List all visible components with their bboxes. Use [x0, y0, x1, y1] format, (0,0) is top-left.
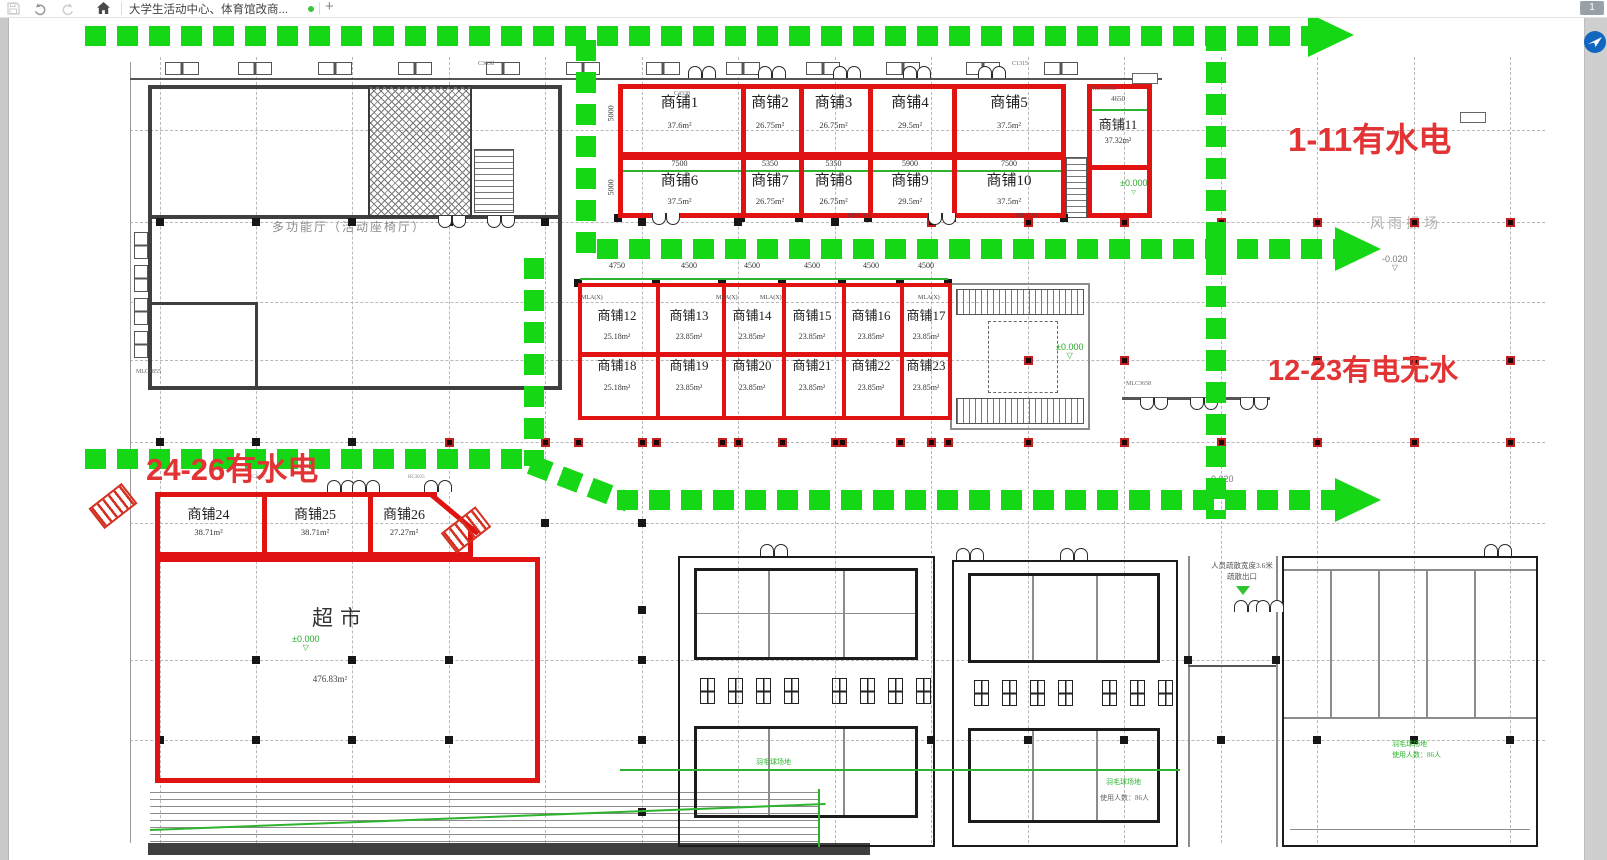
shop-area: 29.5m²	[868, 121, 952, 130]
shop-area: 23.85m²	[842, 333, 900, 342]
shop-area: 37.32m²	[1088, 137, 1148, 146]
redo-icon[interactable]	[60, 1, 75, 16]
stairs-symbol	[474, 149, 514, 213]
stairs-symbol	[1066, 157, 1087, 218]
dimension-text: 4500	[842, 262, 900, 271]
window-symbol	[646, 62, 680, 75]
shop-name: 商铺12	[578, 309, 656, 323]
stair-wall	[1088, 283, 1090, 430]
column-marker	[944, 438, 953, 447]
seat-block	[860, 678, 875, 704]
shop-area: 27.27m²	[368, 528, 440, 537]
exterior-wall	[558, 85, 562, 390]
column-marker	[1184, 656, 1192, 664]
dimension-text: 5900	[868, 160, 952, 169]
shop-divider	[1087, 165, 1152, 170]
wall-code: MLC1855	[136, 369, 161, 376]
stair-wall	[950, 283, 1090, 285]
shop-name: 商铺25	[262, 508, 368, 523]
shop-name: 商铺10	[952, 173, 1066, 190]
court-note: 羽毛球场地	[756, 759, 791, 767]
toolbar: 大学生活动中心、体育馆改商... +	[0, 0, 1607, 18]
column-marker	[778, 438, 787, 447]
window-symbol	[726, 62, 760, 75]
column-marker	[652, 438, 661, 447]
column-marker	[734, 438, 743, 447]
court-note: 羽毛球场地	[1392, 741, 1427, 749]
door-arc-icon	[1060, 548, 1088, 560]
bleacher-green-line	[818, 789, 820, 847]
column-marker	[1506, 356, 1515, 365]
seat-block	[1002, 680, 1017, 706]
window-symbol	[134, 331, 148, 358]
stairs-symbol	[956, 289, 1084, 315]
door-arc-icon	[758, 66, 786, 78]
shop-area: 23.85m²	[842, 384, 900, 393]
interior-wall	[148, 302, 255, 305]
seat-block	[916, 678, 931, 704]
exterior-wall	[148, 386, 562, 390]
door-code: MLA(X)	[716, 295, 738, 302]
door-arc-icon	[956, 548, 984, 560]
room-label-supermarket: 超市	[280, 607, 400, 630]
dimension-text: 7500	[618, 160, 741, 169]
stair-hatch-area	[368, 85, 472, 217]
column-marker	[1120, 438, 1129, 447]
column-marker	[1506, 736, 1514, 744]
dimension-text: 4500	[900, 262, 952, 271]
shop-name: 商铺16	[842, 309, 900, 323]
window-symbol	[318, 62, 352, 75]
seat-block	[784, 678, 799, 704]
shop-area: 37.5m²	[952, 197, 1066, 206]
door-code: MLA(X)	[760, 295, 782, 302]
seat-block	[832, 678, 847, 704]
shop-name: 商铺18	[578, 359, 656, 373]
window-symbol	[134, 265, 148, 292]
door-arc-icon	[833, 66, 861, 78]
column-marker	[638, 218, 646, 226]
column-marker	[1120, 356, 1129, 365]
seat-block	[974, 680, 989, 706]
shop-name: 商铺4	[868, 95, 952, 112]
elevation-marker: -0.020▽	[1382, 255, 1408, 272]
column-marker	[638, 736, 646, 744]
shop-name: 商铺11	[1088, 118, 1148, 132]
seat-block	[888, 678, 903, 704]
court-note: 使用人数：86人	[1392, 752, 1441, 760]
path-arrowhead	[1335, 227, 1381, 271]
annotation-shops-1-11: 1-11有水电	[1288, 113, 1451, 161]
seat-block	[1058, 680, 1073, 706]
dimension-text: 7500	[952, 160, 1066, 169]
shop-name: 商铺5	[952, 95, 1066, 112]
shop-area: 37.5m²	[952, 121, 1066, 130]
dimension-text: 4500	[782, 262, 842, 271]
assistant-float-icon[interactable]	[1584, 31, 1606, 53]
column-marker	[1024, 736, 1032, 744]
dimension-text: 4750	[578, 262, 656, 271]
shop-area: 37.6m²	[618, 121, 741, 130]
supermarket-area: 476.83m²	[290, 675, 370, 685]
shop-name: 商铺20	[722, 359, 782, 373]
shop-area: 26.75m²	[799, 197, 868, 206]
left-panel-edge[interactable]	[0, 17, 9, 860]
scrollbar-rail[interactable]	[1584, 17, 1607, 860]
shop-name: 商铺13	[656, 309, 722, 323]
shop-name: 商铺6	[618, 173, 741, 190]
cad-canvas[interactable]: 1-11有水电 12-23有电无水 24-26有水电 多功能厅（活动座椅厅） 风…	[0, 17, 1607, 860]
door-arc-icon	[1240, 398, 1268, 410]
stair-wall	[950, 428, 1090, 430]
shop-name: 商铺8	[799, 173, 868, 190]
column-marker	[896, 438, 905, 447]
path-dashes	[617, 490, 1335, 510]
dimension-text: 5000	[608, 179, 617, 195]
door-code: M1A(X)	[848, 213, 869, 220]
dimension-text: 5350	[799, 160, 868, 169]
shop-area: 25.18m²	[578, 333, 656, 342]
elevation-marker: ±0.000▽	[1056, 343, 1083, 360]
door-arc-icon	[487, 216, 515, 228]
column-marker	[927, 736, 935, 744]
shop-area: 26.75m²	[741, 197, 799, 206]
door-arc-icon	[652, 213, 680, 225]
shop-name: 商铺2	[741, 95, 799, 112]
shop-area: 38.71m²	[155, 528, 262, 537]
shop-name: 商铺1	[618, 95, 741, 112]
door-arc-icon	[928, 213, 956, 225]
annotation-shops-12-23: 12-23有电无水	[1268, 347, 1458, 389]
shop-block-outline	[155, 492, 160, 557]
tab-status-dot	[308, 6, 314, 12]
shop-name: 商铺15	[782, 309, 842, 323]
door-arc-icon	[1140, 398, 1168, 410]
shop-area: 26.75m²	[799, 121, 868, 130]
window-symbol	[1044, 62, 1078, 75]
column-marker	[1024, 356, 1033, 365]
supermarket-outline	[155, 557, 540, 783]
door-arc-icon	[760, 544, 788, 556]
dimension-text: 5000	[608, 105, 617, 121]
window-code: C3638	[478, 61, 494, 68]
column-marker	[638, 438, 647, 447]
door-arc-icon	[978, 66, 1006, 78]
dimension-text: 4500	[722, 262, 782, 271]
seat-block	[1102, 680, 1117, 706]
column-marker	[718, 438, 727, 447]
path-dashes	[1206, 30, 1226, 519]
exterior-wall	[130, 78, 1162, 80]
door-arc-icon	[327, 480, 355, 492]
dimension-text: 5350	[741, 160, 799, 169]
seat-block	[1030, 680, 1045, 706]
shop-area: 23.85m²	[722, 333, 782, 342]
column-marker	[1313, 736, 1321, 744]
column-marker	[1410, 218, 1419, 227]
door-arc-icon	[1484, 544, 1512, 556]
column-marker	[638, 656, 646, 664]
shop-block-outline	[155, 492, 437, 497]
seat-block	[756, 678, 771, 704]
corridor-wall	[1188, 665, 1276, 667]
path-arrowhead	[1335, 478, 1381, 522]
shop-divider	[578, 352, 952, 357]
stairs-symbol	[956, 398, 1084, 424]
annotation-shops-24-26: 24-26有水电	[146, 444, 318, 489]
exterior-wall	[148, 85, 562, 89]
shop-name: 商铺23	[900, 359, 952, 373]
window-symbol	[134, 298, 148, 325]
evacuation-exit-label: 疏散出口	[1190, 573, 1294, 581]
door-arc-icon	[1256, 600, 1284, 612]
column-marker	[1313, 218, 1322, 227]
court-field	[968, 573, 1160, 663]
toolbar-separator	[319, 2, 320, 15]
shop-name: 商铺21	[782, 359, 842, 373]
shop-area: 29.5m²	[868, 197, 952, 206]
stair-well	[988, 321, 1058, 393]
shop-area: 23.85m²	[656, 333, 722, 342]
dim-box	[1132, 73, 1158, 84]
evacuation-note: 人员疏散宽度3.6米	[1190, 562, 1294, 570]
path-dashes	[527, 455, 632, 511]
shop-area: 23.85m²	[782, 333, 842, 342]
window-symbol	[238, 62, 272, 75]
shop-area: 26.75m²	[741, 121, 799, 130]
shop-name: 商铺3	[799, 95, 868, 112]
column-marker	[541, 519, 549, 527]
interior-wall	[255, 302, 258, 390]
dimension-text: 4500	[656, 262, 722, 271]
exterior-wall	[148, 85, 152, 390]
grid-line	[545, 57, 546, 843]
elevation-marker: ±0.000▽	[1120, 179, 1147, 197]
path-dashes	[524, 258, 544, 466]
door-arc-icon	[903, 66, 931, 78]
shop-name: 商铺26	[368, 508, 440, 523]
window-code: MLC3338	[1091, 86, 1116, 93]
seat-block	[700, 678, 715, 704]
window-symbol	[165, 62, 199, 75]
shop-name: 商铺19	[656, 359, 722, 373]
column-marker	[252, 218, 260, 226]
dimension-text: 4650	[1089, 96, 1147, 104]
shop-area: 23.85m²	[722, 384, 782, 393]
column-marker	[838, 438, 847, 447]
column-marker	[1024, 438, 1033, 447]
column-marker	[1120, 218, 1129, 227]
door-arc-icon	[438, 216, 466, 228]
toolbar-separator	[121, 2, 122, 15]
shop-name: 商铺14	[722, 309, 782, 323]
shop-area: 37.5m²	[618, 197, 741, 206]
undo-icon[interactable]	[33, 1, 48, 16]
building-outline	[1282, 556, 1538, 847]
column-marker	[831, 218, 839, 226]
dim-box	[1460, 112, 1486, 123]
add-tab-button[interactable]: +	[325, 0, 334, 15]
column-marker	[1313, 438, 1322, 447]
dimension-line	[580, 278, 948, 280]
column-marker	[638, 606, 646, 614]
seat-block	[728, 678, 743, 704]
shop-area: 38.71m²	[262, 528, 368, 537]
window-code: C1315	[1012, 61, 1028, 68]
column-marker	[348, 218, 356, 226]
court-note: 使用人数：86人	[1100, 795, 1149, 803]
save-icon[interactable]	[6, 1, 21, 16]
shop-area: 23.85m²	[900, 333, 952, 342]
column-marker	[1272, 656, 1280, 664]
shop-name: 商铺9	[868, 173, 952, 190]
document-tab[interactable]: 大学生活动中心、体育馆改商...	[129, 1, 305, 17]
column-marker	[1506, 218, 1515, 227]
shop-name: 商铺7	[741, 173, 799, 190]
column-marker	[638, 519, 646, 527]
shop-divider	[368, 492, 373, 557]
shop-area: 25.18m²	[578, 384, 656, 393]
door-code: MLA(X)	[581, 295, 603, 302]
path-dashes	[85, 26, 1308, 46]
seat-block	[1158, 680, 1173, 706]
shop-block-outline	[1087, 84, 1152, 218]
shop-area: 23.85m²	[782, 384, 842, 393]
column-marker	[445, 438, 454, 447]
window-symbol	[398, 62, 432, 75]
wall-code: MLC3658	[1126, 381, 1151, 388]
exit-triangle-icon	[1236, 586, 1250, 595]
window-symbol	[134, 232, 148, 259]
door-code: MLA(X)	[918, 295, 940, 302]
shop-divider	[262, 492, 267, 557]
court-note: 羽毛球场地	[1106, 779, 1141, 787]
court-green-line	[620, 769, 1180, 771]
door-arc-icon	[424, 480, 452, 492]
column-marker	[1410, 438, 1419, 447]
path-arrowhead	[1308, 17, 1354, 57]
door-arc-icon	[352, 480, 380, 492]
column-marker	[541, 218, 549, 226]
column-marker	[1120, 736, 1128, 744]
column-marker	[574, 438, 583, 447]
corridor-wall	[1188, 556, 1190, 847]
shop-name: 商铺17	[900, 309, 952, 323]
home-icon[interactable]	[96, 1, 111, 16]
column-marker	[156, 218, 164, 226]
column-marker	[1506, 438, 1515, 447]
page-number-badge: 1	[1580, 1, 1604, 15]
column-marker	[927, 438, 936, 447]
column-marker	[348, 438, 356, 446]
shop-area: 23.85m²	[656, 384, 722, 393]
column-marker	[1217, 736, 1225, 744]
shop-area: 23.85m²	[900, 384, 952, 393]
court-field	[968, 728, 1160, 823]
shop-name: 商铺22	[842, 359, 900, 373]
door-arc-icon	[688, 66, 716, 78]
shop-name: 商铺24	[155, 508, 262, 523]
elevation-marker: ±0.000▽	[292, 635, 319, 652]
seat-block	[1130, 680, 1145, 706]
window-code: RC3025	[408, 475, 425, 481]
court-field	[694, 568, 918, 660]
door-code: M1A(X)	[1016, 213, 1037, 220]
path-dashes	[576, 40, 596, 258]
